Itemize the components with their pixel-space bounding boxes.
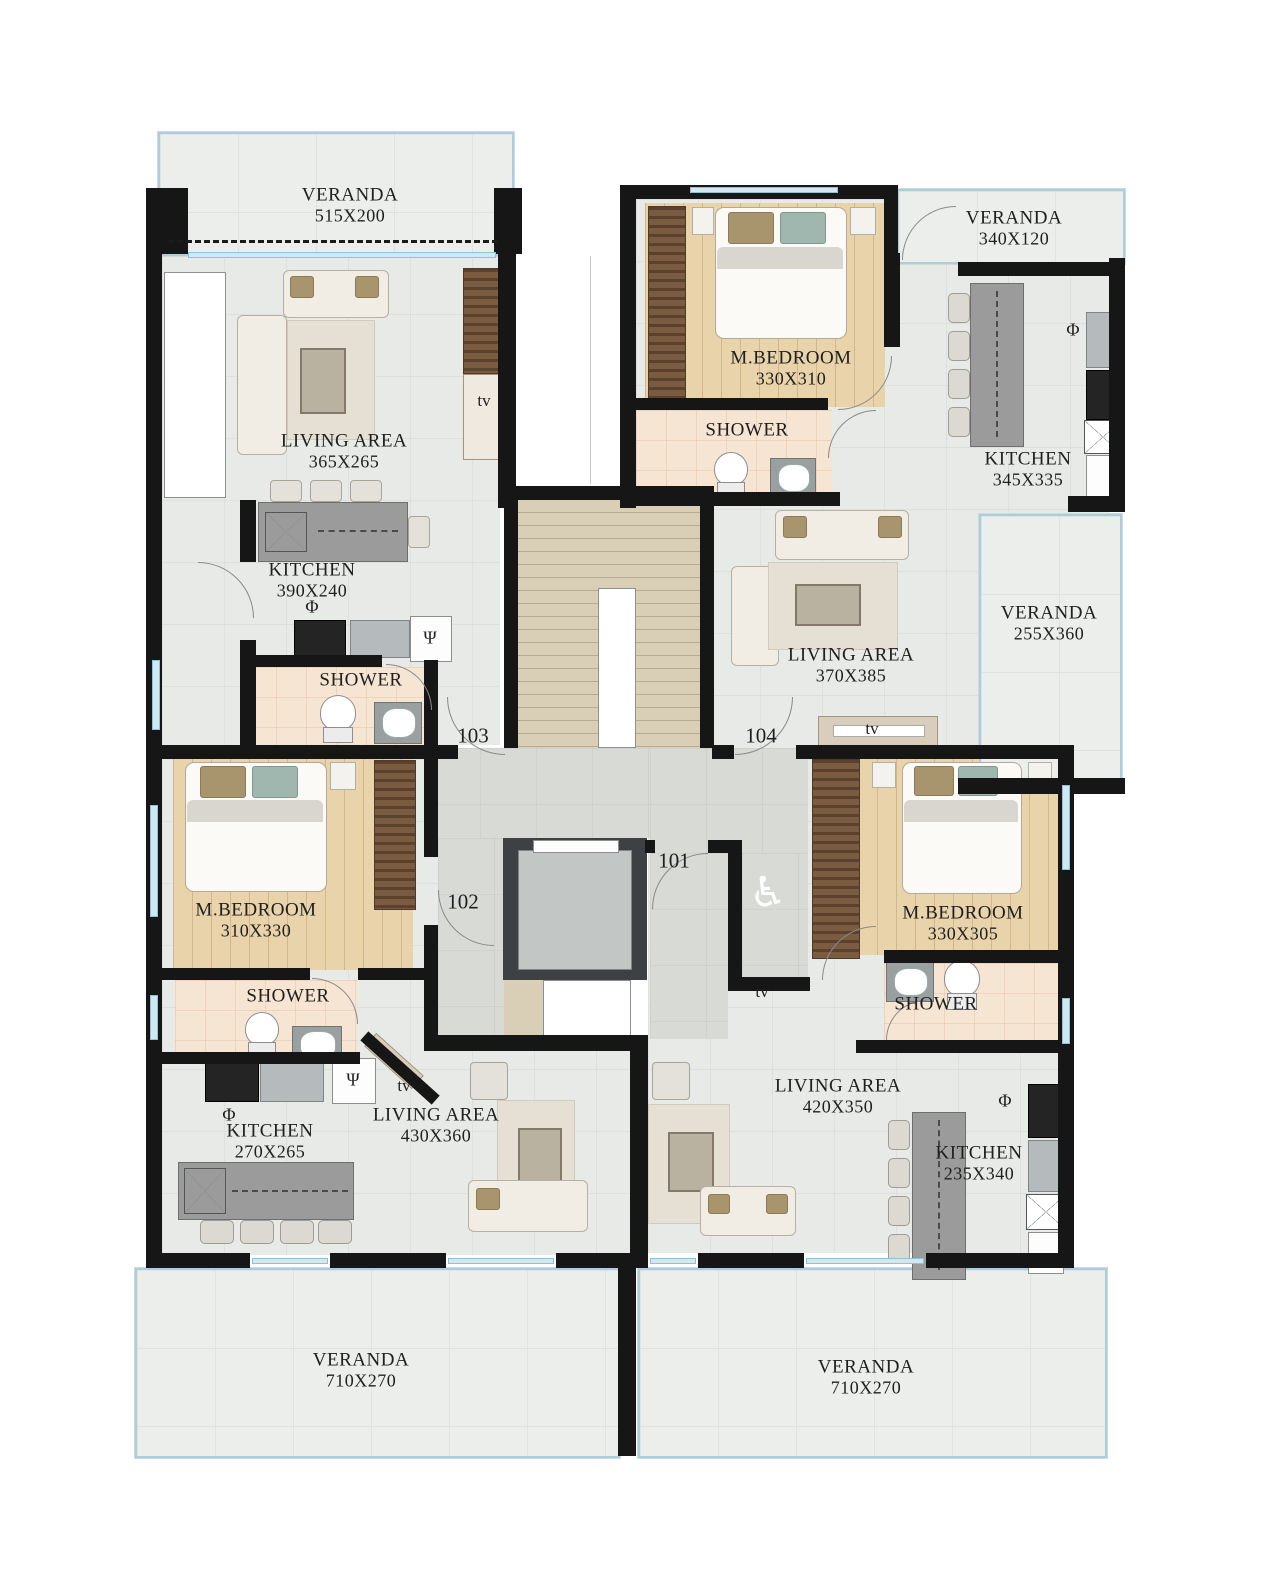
wall — [160, 1052, 360, 1064]
counter-dash — [996, 291, 998, 437]
wall — [160, 968, 310, 980]
wall — [728, 853, 742, 979]
wall — [504, 486, 518, 748]
sofa-pillow — [783, 516, 807, 538]
bed-pillow — [252, 766, 298, 798]
hob — [205, 1062, 259, 1102]
bar-stool — [948, 407, 970, 437]
unit-number-102: 102 — [447, 890, 479, 915]
bed-pillow — [914, 766, 954, 796]
elevator-door — [533, 840, 619, 853]
room-label-living-tr: LIVING AREA370X385 — [788, 646, 914, 687]
window — [650, 1258, 696, 1264]
room-label-living-br: LIVING AREA420X350 — [775, 1077, 901, 1118]
coffee-table — [668, 1132, 714, 1192]
bed-blanket — [187, 800, 323, 822]
corridor-floor — [424, 748, 650, 838]
room-label-living-bl: LIVING AREA430X360 — [373, 1106, 499, 1147]
wall — [424, 1035, 648, 1051]
wall — [700, 486, 714, 748]
dining-chair — [310, 480, 342, 502]
window — [188, 252, 496, 258]
wall — [1109, 258, 1125, 498]
bar-stool — [948, 369, 970, 399]
wall — [424, 925, 438, 1037]
veranda-dashed-wall — [168, 240, 498, 243]
coffee-table — [518, 1128, 562, 1188]
wall — [498, 252, 516, 508]
psi-symbol: Ψ — [346, 1070, 359, 1091]
bar-stool — [240, 1220, 274, 1244]
wardrobe — [374, 760, 416, 910]
duct-corner — [504, 980, 543, 1036]
tv-label: tv — [865, 719, 878, 739]
corridor-floor — [650, 748, 808, 853]
wall — [926, 1253, 1074, 1268]
wall — [330, 1253, 446, 1268]
bar-stool — [888, 1196, 910, 1226]
bed-pillow — [780, 212, 826, 244]
bed-blanket — [904, 800, 1018, 822]
window — [1062, 998, 1070, 1044]
tv-label: tv — [397, 1076, 410, 1096]
dining-chair — [270, 480, 302, 502]
wall — [708, 840, 742, 853]
coffee-table — [795, 584, 861, 626]
duct — [543, 980, 631, 1036]
room-label-veranda-bl: VERANDA710X270 — [313, 1351, 409, 1392]
window — [152, 660, 160, 730]
window — [150, 805, 158, 917]
nightstand — [850, 207, 876, 235]
room-label-kitchen-tr: KITCHEN345X335 — [985, 450, 1072, 491]
wall — [958, 262, 1125, 276]
room-label-shower-br: SHOWER — [894, 995, 977, 1016]
room-label-kitchen-br: KITCHEN235X340 — [936, 1144, 1023, 1185]
wall — [358, 968, 424, 980]
phi-symbol: Φ — [1066, 320, 1079, 341]
room-label-shower-bl: SHOWER — [246, 987, 329, 1008]
bar-stool — [948, 331, 970, 361]
hob — [294, 620, 346, 658]
unit-number-103: 103 — [457, 724, 489, 749]
bar-stool — [318, 1220, 352, 1244]
room-label-living-tl: LIVING AREA365X265 — [281, 432, 407, 473]
wall — [628, 492, 840, 506]
dining-chair — [350, 480, 382, 502]
window — [690, 187, 838, 193]
void-divider-line — [590, 256, 591, 484]
kitchen-sink — [260, 1062, 324, 1102]
room-label-shower-tr: SHOWER — [705, 421, 788, 442]
counter-dash — [318, 530, 398, 532]
nightstand — [330, 762, 356, 790]
window — [1062, 785, 1070, 870]
wheelchair-icon: ♿ — [749, 868, 787, 917]
room-label-veranda-br: VERANDA710X270 — [818, 1358, 914, 1399]
nightstand — [692, 207, 714, 235]
cooktop-icon — [265, 512, 307, 552]
bar-stool — [888, 1158, 910, 1188]
sofa-pillow — [290, 276, 314, 298]
wall — [618, 1266, 636, 1456]
wall — [494, 188, 522, 254]
window — [806, 1258, 924, 1264]
sofa-pillow — [766, 1194, 788, 1214]
wall — [630, 1035, 648, 1267]
wall — [146, 188, 188, 254]
wall — [645, 840, 655, 853]
wardrobe — [812, 759, 860, 959]
floor-plan: VERANDA515X200 LIVING AREA365X265 KITCHE… — [0, 0, 1280, 1587]
room-label-mbedroom-tr: M.BEDROOM330X310 — [730, 349, 851, 390]
armchair — [470, 1062, 508, 1100]
wall — [628, 398, 828, 410]
wall — [958, 778, 1125, 794]
wall — [620, 185, 636, 508]
wall — [796, 745, 1074, 759]
unit-number-104: 104 — [745, 724, 777, 749]
phi-symbol: Φ — [305, 597, 318, 618]
wall — [884, 253, 900, 347]
wall — [424, 745, 438, 857]
coffee-table — [300, 348, 346, 414]
bar-stool — [280, 1220, 314, 1244]
bar-stool — [948, 293, 970, 323]
bed-pillow — [728, 212, 774, 244]
sofa-pillow — [476, 1188, 500, 1210]
room-label-kitchen-tl: KITCHEN390X240 — [269, 561, 356, 602]
room-label-veranda-tl: VERANDA515X200 — [302, 186, 398, 227]
room-label-mbedroom-br: M.BEDROOM330X305 — [902, 904, 1023, 945]
wall — [240, 500, 256, 562]
wall — [146, 252, 162, 1268]
room-label-veranda-r: VERANDA255X360 — [1001, 604, 1097, 645]
room-label-mbedroom-bl: M.BEDROOM310X330 — [195, 901, 316, 942]
phi-symbol: Φ — [998, 1091, 1011, 1112]
counter-dash — [232, 1190, 348, 1192]
room-label-veranda-tr: VERANDA340X120 — [966, 209, 1062, 250]
wall — [1068, 496, 1125, 512]
veranda-right — [979, 514, 1122, 782]
wardrobe — [648, 206, 686, 406]
sofa-pillow — [355, 276, 379, 298]
wall — [856, 1040, 1074, 1053]
kitchen-sink — [350, 620, 410, 658]
window — [150, 995, 158, 1040]
wall — [146, 1253, 250, 1268]
bar-stool — [888, 1120, 910, 1150]
wall — [246, 655, 382, 667]
bar-stool — [200, 1220, 234, 1244]
window — [252, 1258, 328, 1264]
dining-chair — [408, 516, 430, 548]
wall — [884, 950, 1074, 963]
psi-symbol: Ψ — [423, 628, 436, 649]
sofa-pillow — [878, 516, 902, 538]
sofa — [237, 315, 287, 455]
room-label-kitchen-bl: KITCHEN270X265 — [227, 1122, 314, 1163]
armchair — [652, 1062, 690, 1100]
wall — [698, 1253, 804, 1268]
toilet — [320, 695, 354, 743]
cooktop-icon — [184, 1168, 226, 1214]
stair-divider — [598, 588, 636, 748]
window-panel — [164, 272, 226, 498]
unit-number-101: 101 — [658, 849, 690, 874]
wall — [712, 745, 734, 759]
window — [448, 1258, 554, 1264]
tv-label: tv — [477, 391, 490, 411]
wall — [728, 977, 810, 991]
wall — [160, 745, 458, 759]
room-label-shower-tl: SHOWER — [319, 671, 402, 692]
nightstand — [872, 762, 896, 788]
bed-pillow — [200, 766, 246, 798]
sofa-pillow — [708, 1194, 730, 1214]
bed-blanket — [717, 247, 843, 269]
elevator-cab — [518, 850, 632, 970]
tv-label: tv — [755, 982, 768, 1002]
